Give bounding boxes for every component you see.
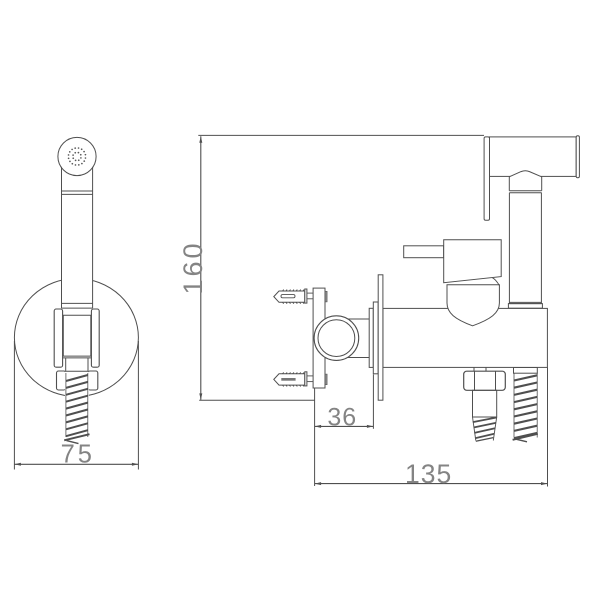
svg-text:135: 135 (405, 459, 452, 489)
svg-text:36: 36 (327, 403, 357, 431)
svg-text:160: 160 (178, 240, 208, 294)
svg-text:75: 75 (61, 441, 95, 469)
